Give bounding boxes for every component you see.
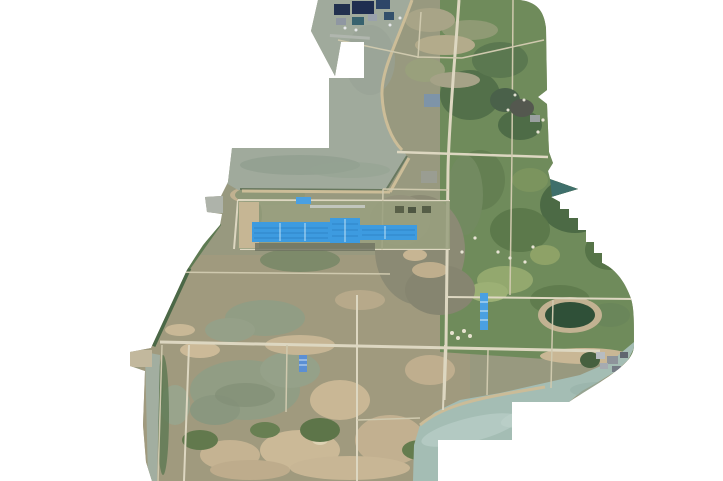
mosaic-content — [120, 0, 650, 481]
blue-shed-east — [480, 293, 488, 330]
orthomosaic-page — [0, 0, 723, 481]
blue-shed-north — [296, 197, 311, 204]
factory-compound — [238, 197, 450, 251]
teal-edge-triangle — [550, 179, 578, 197]
west-tab — [130, 350, 152, 367]
blue-shed-south — [299, 355, 307, 372]
grey-blue-building — [424, 94, 440, 107]
orthomosaic-map — [0, 0, 723, 481]
dark-pond — [538, 297, 602, 333]
pier-tab — [205, 196, 223, 213]
